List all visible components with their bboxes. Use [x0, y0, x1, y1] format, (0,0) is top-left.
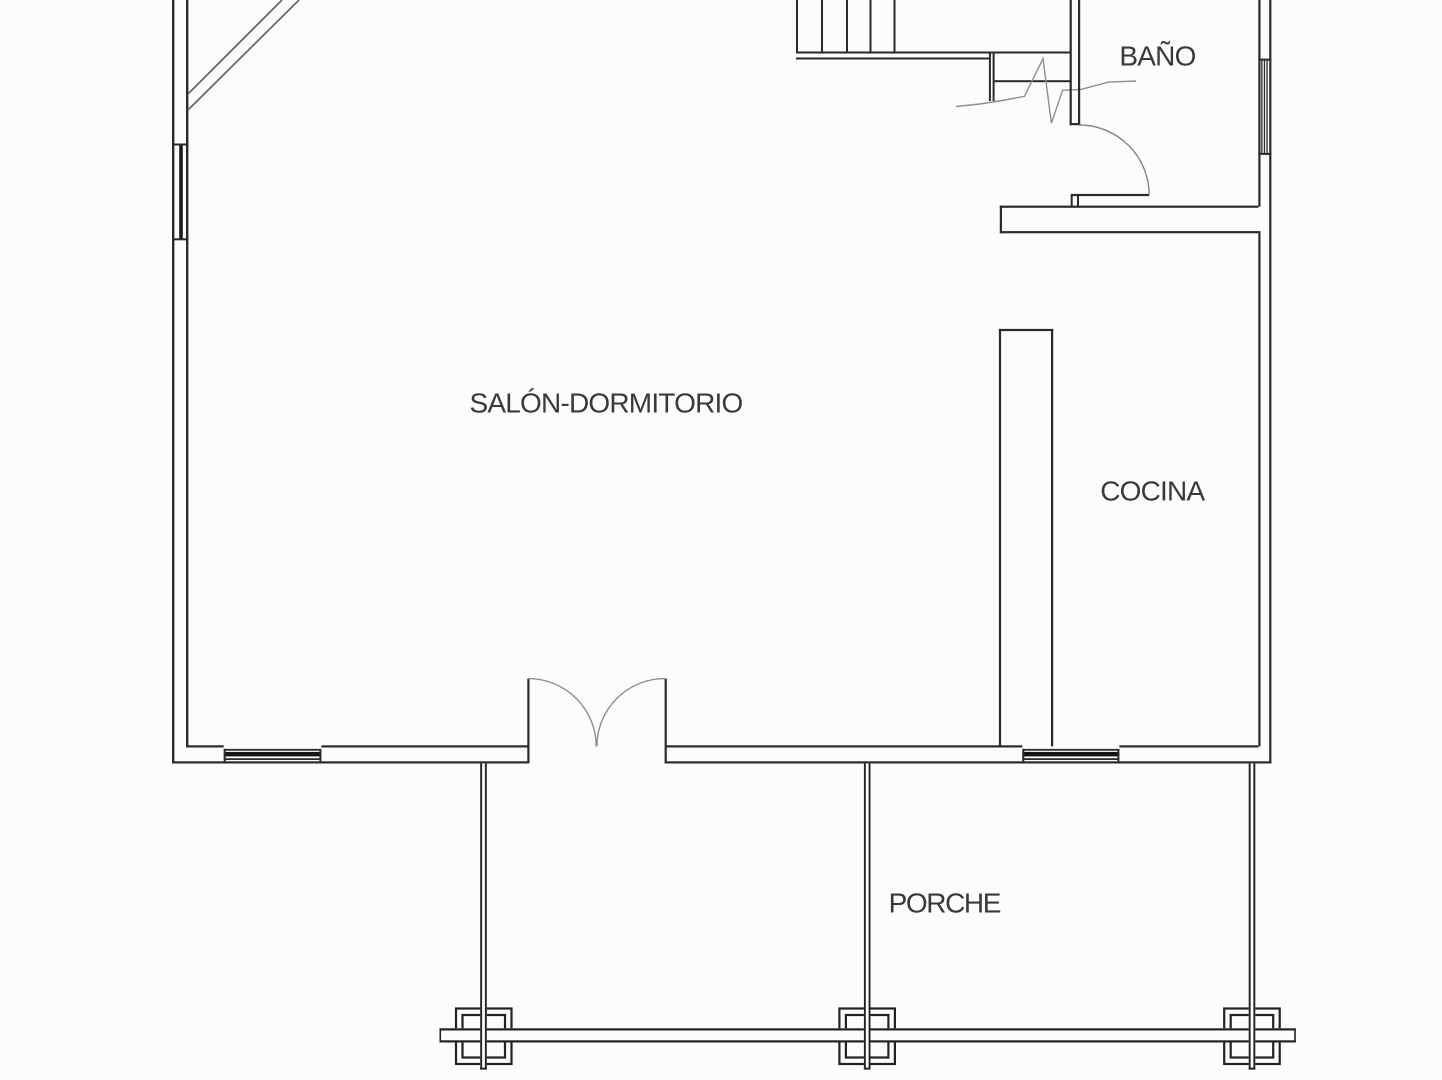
svg-text:BAÑO: BAÑO	[1119, 41, 1195, 72]
svg-text:COCINA: COCINA	[1100, 476, 1205, 507]
svg-text:PORCHE: PORCHE	[889, 888, 1001, 919]
svg-text:SALÓN-DORMITORIO: SALÓN-DORMITORIO	[470, 388, 743, 419]
